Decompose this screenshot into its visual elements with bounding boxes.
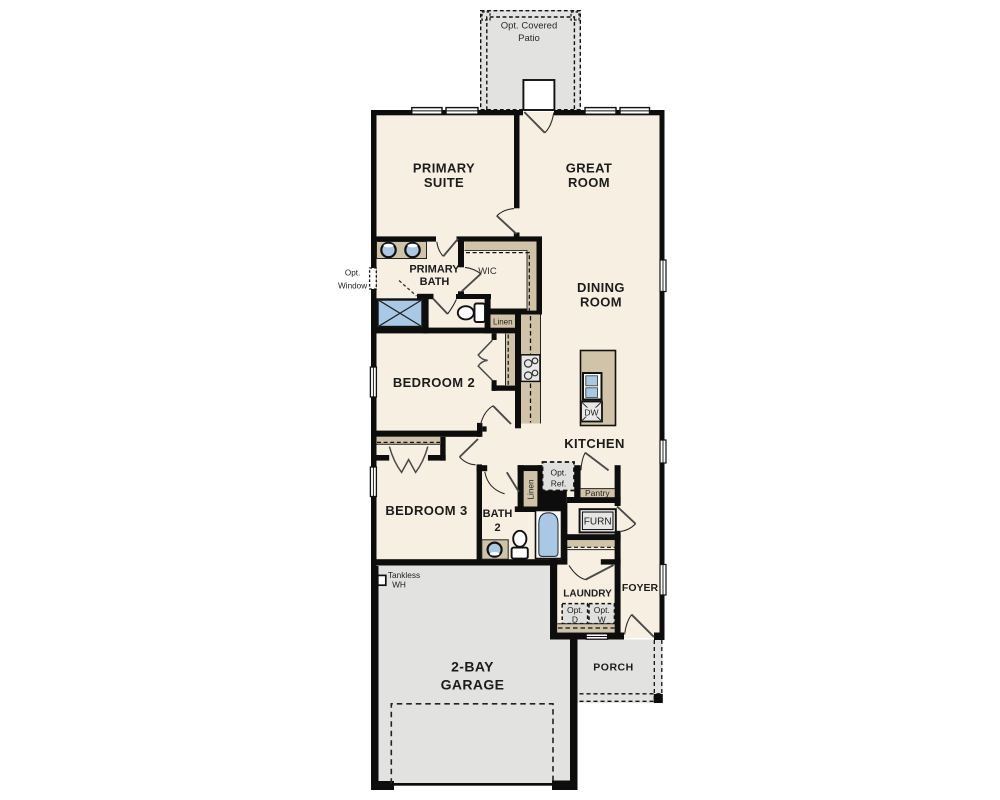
svg-text:WIC: WIC [478,266,497,277]
svg-text:GREAT: GREAT [566,161,613,176]
svg-text:W: W [598,614,606,624]
svg-text:2: 2 [494,522,500,534]
svg-text:GARAGE: GARAGE [441,677,505,693]
svg-text:Pantry: Pantry [585,488,610,498]
svg-text:BATH: BATH [483,508,513,520]
svg-text:Opt. Covered: Opt. Covered [501,21,558,32]
svg-text:SUITE: SUITE [424,175,464,190]
svg-text:PRIMARY: PRIMARY [413,161,475,176]
svg-text:DINING: DINING [577,280,625,295]
svg-text:BATH: BATH [420,276,450,288]
svg-text:Linen: Linen [493,317,513,326]
svg-text:WH: WH [392,580,406,590]
svg-text:KITCHEN: KITCHEN [564,436,625,451]
svg-text:DW: DW [584,407,598,417]
svg-text:BEDROOM 2: BEDROOM 2 [393,375,475,390]
svg-text:Patio: Patio [518,33,540,44]
svg-text:Window: Window [338,281,367,290]
svg-text:2-BAY: 2-BAY [451,659,494,675]
svg-text:FOYER: FOYER [622,582,659,594]
svg-text:D: D [572,614,578,624]
svg-text:PORCH: PORCH [593,662,633,674]
svg-text:Opt.: Opt. [345,268,360,277]
svg-text:Ref.: Ref. [551,478,567,488]
svg-text:Tankless: Tankless [388,570,420,580]
svg-text:Opt.: Opt. [550,467,566,477]
svg-text:LAUNDRY: LAUNDRY [563,589,612,600]
svg-text:ROOM: ROOM [568,175,610,190]
svg-text:BEDROOM 3: BEDROOM 3 [385,503,467,518]
svg-text:FURN: FURN [584,517,612,528]
svg-text:ROOM: ROOM [580,295,622,310]
svg-text:PRIMARY: PRIMARY [409,264,460,276]
svg-text:Linen: Linen [527,479,536,499]
